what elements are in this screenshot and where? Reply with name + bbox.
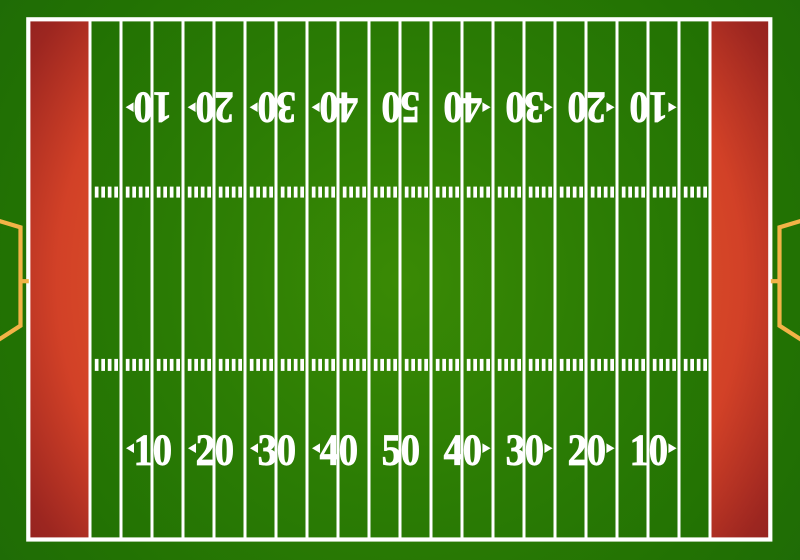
svg-text:5: 5 xyxy=(382,425,401,474)
svg-text:0: 0 xyxy=(381,83,400,132)
svg-text:3: 3 xyxy=(506,425,525,474)
svg-text:0: 0 xyxy=(587,425,606,474)
svg-text:1: 1 xyxy=(649,83,668,132)
svg-text:0: 0 xyxy=(257,83,276,132)
svg-text:2: 2 xyxy=(196,425,215,474)
svg-text:0: 0 xyxy=(153,425,172,474)
svg-text:1: 1 xyxy=(630,425,649,474)
svg-text:0: 0 xyxy=(505,83,524,132)
svg-text:1: 1 xyxy=(153,83,172,132)
svg-text:0: 0 xyxy=(339,425,358,474)
svg-text:0: 0 xyxy=(629,83,648,132)
svg-text:0: 0 xyxy=(401,425,420,474)
svg-text:4: 4 xyxy=(463,83,482,132)
svg-text:2: 2 xyxy=(587,83,606,132)
svg-text:0: 0 xyxy=(463,425,482,474)
svg-text:0: 0 xyxy=(133,83,152,132)
svg-text:2: 2 xyxy=(215,83,234,132)
svg-text:0: 0 xyxy=(649,425,668,474)
svg-text:0: 0 xyxy=(319,83,338,132)
svg-text:3: 3 xyxy=(525,83,544,132)
svg-text:4: 4 xyxy=(320,425,339,474)
svg-text:4: 4 xyxy=(444,425,463,474)
svg-text:3: 3 xyxy=(277,83,296,132)
svg-text:0: 0 xyxy=(443,83,462,132)
svg-text:0: 0 xyxy=(215,425,234,474)
svg-text:3: 3 xyxy=(258,425,277,474)
svg-text:5: 5 xyxy=(401,83,420,132)
svg-text:1: 1 xyxy=(134,425,153,474)
svg-text:0: 0 xyxy=(195,83,214,132)
svg-text:4: 4 xyxy=(339,83,358,132)
svg-text:0: 0 xyxy=(525,425,544,474)
svg-text:0: 0 xyxy=(567,83,586,132)
svg-text:0: 0 xyxy=(277,425,296,474)
svg-text:2: 2 xyxy=(568,425,587,474)
